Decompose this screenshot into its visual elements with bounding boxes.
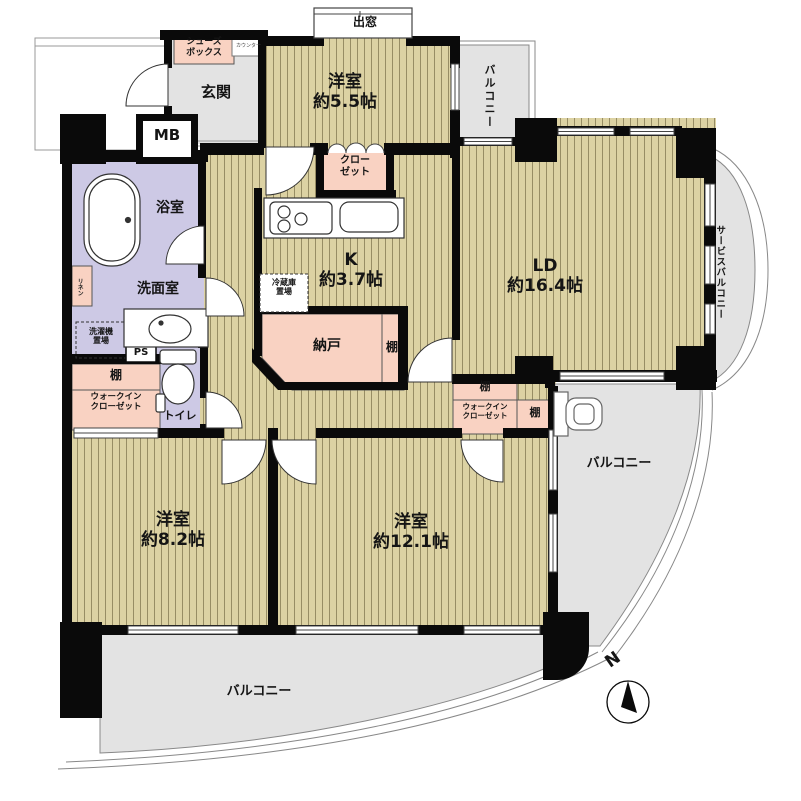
closet-folding-doors bbox=[328, 143, 384, 153]
floor-plan-drawing bbox=[0, 0, 801, 801]
wic-left-fill bbox=[72, 390, 160, 430]
storage-room-fill bbox=[262, 314, 404, 390]
folding-door-wic-left bbox=[74, 428, 158, 438]
closet-fill bbox=[322, 150, 388, 192]
mb-box bbox=[142, 120, 192, 158]
bay-window bbox=[314, 8, 412, 38]
ps-box bbox=[126, 346, 156, 362]
sink bbox=[340, 202, 398, 232]
wash-basin bbox=[124, 309, 208, 347]
fridge-space-box bbox=[260, 274, 308, 312]
bathtub bbox=[84, 174, 140, 266]
kitchen-counter bbox=[264, 198, 404, 238]
linen-fill bbox=[72, 266, 92, 306]
balcony-sink bbox=[554, 392, 602, 436]
floor-plan: シューズ ボックス カウンター 玄関 MB 出窓 洋室 約5.5帖 バルコニー … bbox=[0, 0, 801, 801]
wic-left-shelf-fill bbox=[72, 364, 160, 390]
balcony-bottom-floor bbox=[100, 633, 586, 753]
service-balcony-floor bbox=[710, 156, 755, 382]
compass bbox=[607, 681, 649, 723]
